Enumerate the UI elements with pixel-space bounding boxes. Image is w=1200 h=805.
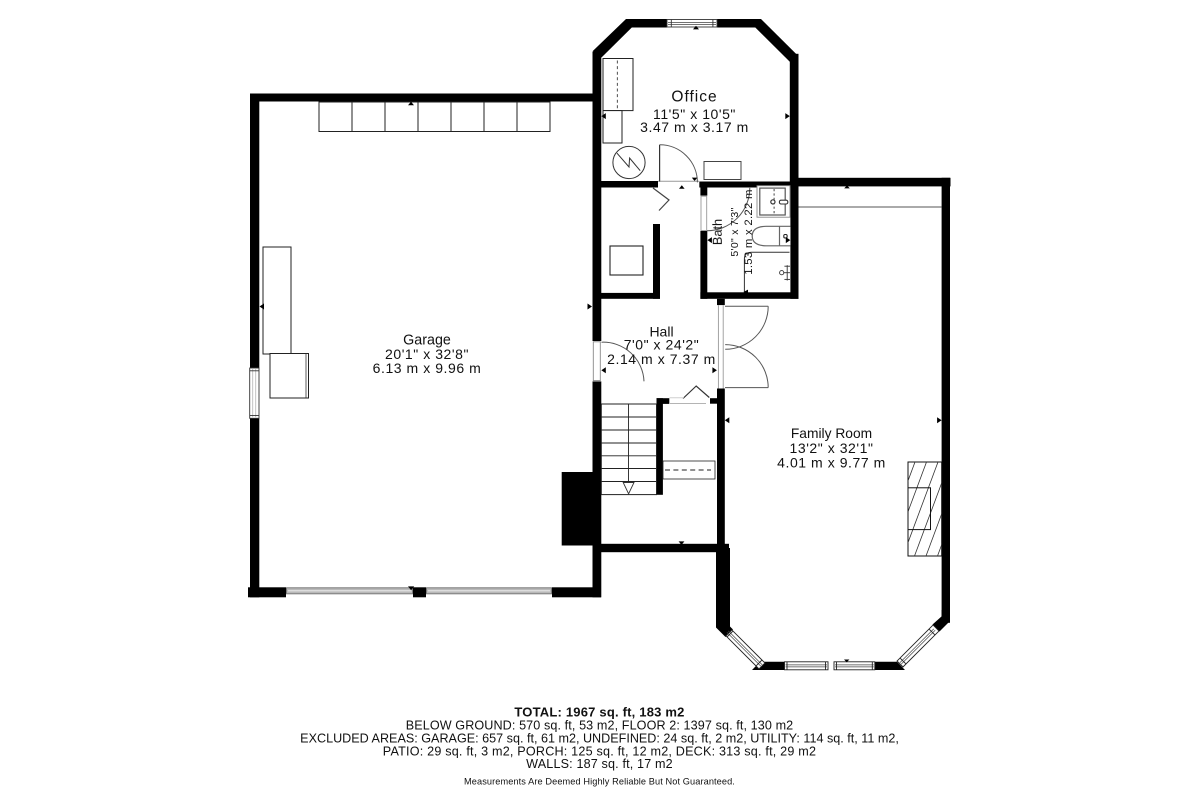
svg-text:WALLS: 187 sq. ft, 17 m2: WALLS: 187 sq. ft, 17 m2 xyxy=(526,757,673,771)
svg-text:6.13 m x 9.96 m: 6.13 m x 9.96 m xyxy=(373,360,482,376)
svg-text:Office: Office xyxy=(671,89,717,106)
svg-text:EXCLUDED AREAS: GARAGE: 657 sq: EXCLUDED AREAS: GARAGE: 657 sq. ft, 61 m… xyxy=(300,731,899,745)
svg-text:PATIO: 29 sq. ft, 3 m2, PORCH:: PATIO: 29 sq. ft, 3 m2, PORCH: 125 sq. f… xyxy=(383,744,816,758)
svg-text:1.53 m x 2.22 m: 1.53 m x 2.22 m xyxy=(743,189,755,275)
svg-text:Family Room: Family Room xyxy=(791,426,872,441)
svg-text:3.47 m x 3.17 m: 3.47 m x 3.17 m xyxy=(640,119,749,135)
svg-text:TOTAL: 1967 sq. ft, 183 m2: TOTAL: 1967 sq. ft, 183 m2 xyxy=(514,705,684,720)
svg-text:BELOW GROUND: 570 sq. ft, 53 m: BELOW GROUND: 570 sq. ft, 53 m2, FLOOR 2… xyxy=(406,719,794,733)
svg-text:5'0" x 7'3": 5'0" x 7'3" xyxy=(729,207,741,256)
svg-text:2.14 m x 7.37 m: 2.14 m x 7.37 m xyxy=(607,351,716,367)
svg-text:Measurements Are Deemed Highly: Measurements Are Deemed Highly Reliable … xyxy=(464,777,735,787)
svg-text:4.01 m x 9.77 m: 4.01 m x 9.77 m xyxy=(777,455,886,471)
svg-text:Bath: Bath xyxy=(710,219,725,245)
